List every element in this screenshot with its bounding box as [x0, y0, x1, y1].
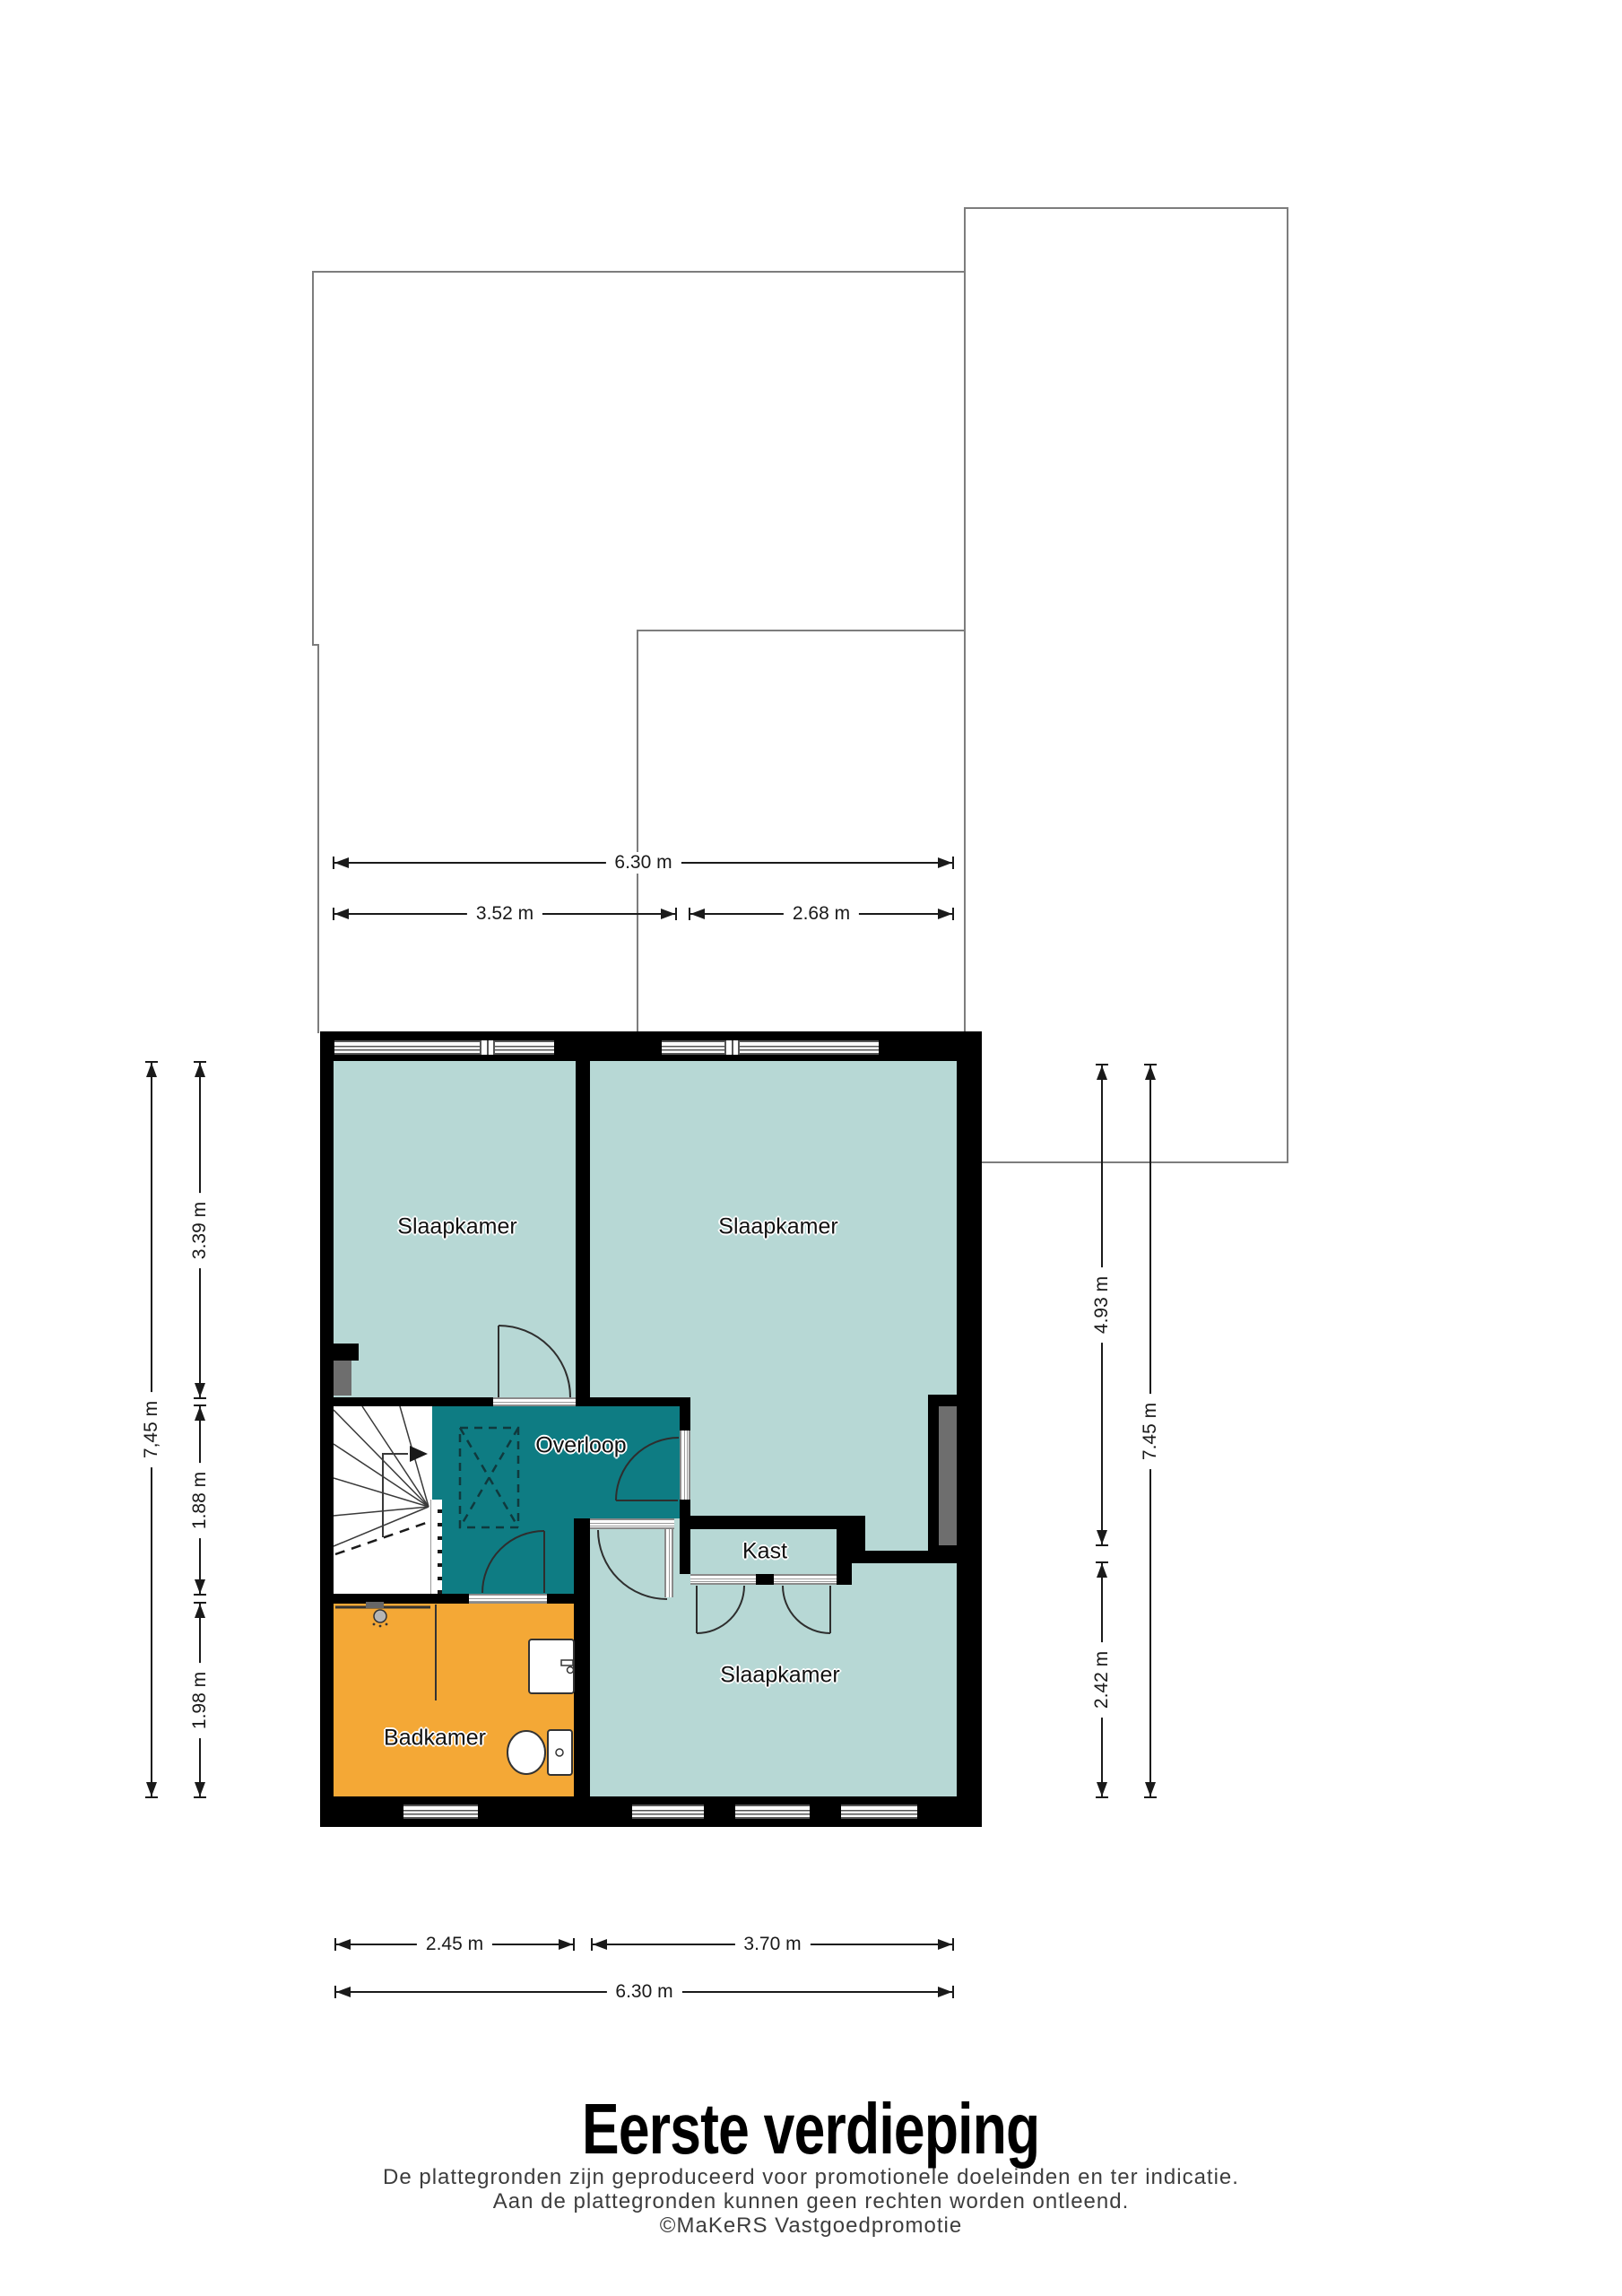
- door-leaf-bedroom3: [664, 1529, 673, 1597]
- dim-left-upper: 3.39 m: [199, 1063, 201, 1397]
- roof-outline-left-upper: [312, 271, 314, 645]
- room-overloop-lower: [432, 1518, 574, 1594]
- wall-kast-left: [680, 1529, 690, 1574]
- dim-left-lower-label: 1.98 m: [189, 1662, 211, 1737]
- roof-outline-left-lower: [317, 644, 319, 1033]
- dim-bottom-right-label: 3.70 m: [734, 1934, 810, 1955]
- roof-outline-top: [312, 271, 966, 273]
- wall-exterior-right: [957, 1031, 982, 1827]
- roof-outline-inner-top: [637, 630, 965, 631]
- wall-kast-top: [680, 1516, 852, 1529]
- roof-outline-right: [1287, 207, 1288, 1163]
- label-overloop: Overloop: [535, 1433, 626, 1459]
- disclaimer-line-1: De plattegronden zijn geproduceerd voor …: [0, 2165, 1622, 2190]
- room-overloop-upper: [432, 1406, 680, 1518]
- dim-right-total-label: 7.45 m: [1140, 1393, 1161, 1468]
- stairwell: [334, 1406, 432, 1594]
- dim-left-total-label: 7,45 m: [141, 1392, 162, 1467]
- label-slaapkamer-top-right: Slaapkamer: [718, 1214, 837, 1240]
- chimney-bedroom1: [334, 1361, 351, 1396]
- chimney-bedroom2: [939, 1406, 957, 1545]
- dim-top-left-label: 3.52 m: [467, 903, 542, 925]
- room-badkamer: [334, 1604, 574, 1796]
- roof-outline-inner-left: [637, 630, 638, 1032]
- roof-outline-top-right: [964, 207, 1288, 209]
- disclaimer-line-3: ©MaKeRS Vastgoedpromotie: [0, 2213, 1622, 2239]
- dim-bottom-left-label: 2.45 m: [417, 1934, 492, 1955]
- window-top-bedroom2: [662, 1040, 879, 1055]
- dim-left-middle: 1.88 m: [199, 1406, 201, 1594]
- label-slaapkamer-top-left: Slaapkamer: [397, 1214, 516, 1240]
- label-kast: Kast: [742, 1539, 787, 1565]
- dim-top-total: 6.30 m: [334, 862, 952, 864]
- wall-overloop-top-right: [576, 1397, 690, 1406]
- floor-plan-canvas: Slaapkamer Slaapkamer Slaapkamer Overloo…: [0, 0, 1622, 2296]
- dim-top-right-span: 2.68 m: [690, 913, 952, 915]
- dim-top-total-label: 6.30 m: [605, 852, 681, 874]
- dim-left-middle-label: 1.88 m: [189, 1462, 211, 1537]
- dim-right-lower-label: 2.42 m: [1091, 1642, 1113, 1718]
- window-bottom-bedroom3-c: [841, 1805, 917, 1819]
- window-bottom-bedroom3-b: [735, 1805, 810, 1819]
- dim-right-total: 7.45 m: [1149, 1065, 1151, 1796]
- window-mullion-icon: [480, 1040, 495, 1055]
- wall-overloop-top-left: [334, 1397, 493, 1406]
- dim-left-lower: 1.98 m: [199, 1604, 201, 1796]
- stair-balustrade: [430, 1500, 442, 1594]
- roof-outline-step: [964, 207, 966, 273]
- dim-left-total: 7,45 m: [151, 1063, 152, 1796]
- dim-bottom-left-span: 2.45 m: [336, 1944, 573, 1945]
- dim-right-upper-label: 4.93 m: [1091, 1267, 1113, 1343]
- page-title-wrap: Eerste verdieping: [0, 2088, 1622, 2170]
- dim-top-left-span: 3.52 m: [334, 913, 675, 915]
- roof-outline-bottom-right: [982, 1161, 1288, 1163]
- dim-right-lower: 2.42 m: [1101, 1563, 1103, 1796]
- label-slaapkamer-bottom: Slaapkamer: [720, 1663, 839, 1689]
- sill-bedroom3-door: [590, 1518, 674, 1529]
- window-top-bedroom1: [334, 1040, 554, 1055]
- window-mullion-icon: [724, 1040, 740, 1055]
- sill-bedroom2-door: [680, 1431, 690, 1500]
- wall-badkamer-top-right: [547, 1594, 576, 1604]
- dim-bottom-total-label: 6.30 m: [606, 1981, 681, 2003]
- wall-badkamer-right: [574, 1594, 590, 1796]
- dim-left-upper-label: 3.39 m: [189, 1192, 211, 1267]
- wall-badkamer-top-left: [334, 1594, 469, 1604]
- roof-outline-mid-vertical: [964, 271, 966, 1032]
- dim-bottom-total: 6.30 m: [336, 1991, 952, 1993]
- dim-right-upper: 4.93 m: [1101, 1065, 1103, 1544]
- wall-exterior-left: [320, 1031, 334, 1827]
- window-bottom-badkamer: [403, 1805, 478, 1819]
- disclaimer-line-2: Aan de plattegronden kunnen geen rechten…: [0, 2189, 1622, 2214]
- wall-kast-door-mullion: [756, 1574, 774, 1585]
- wall-stub-bedroom1: [333, 1344, 359, 1361]
- page-title: Eerste verdieping: [582, 2088, 1039, 2170]
- dim-bottom-right-span: 3.70 m: [593, 1944, 952, 1945]
- window-bottom-bedroom3-a: [632, 1805, 704, 1819]
- sill-bedroom1-door: [493, 1397, 576, 1406]
- wall-bedroom1-bedroom2: [576, 1061, 590, 1397]
- dim-top-right-label: 2.68 m: [784, 903, 859, 925]
- sill-badkamer-door: [469, 1594, 547, 1604]
- wall-bedroom2-bedroom3: [849, 1551, 957, 1563]
- label-badkamer: Badkamer: [384, 1726, 486, 1752]
- wall-overloop-right-upper: [680, 1397, 690, 1431]
- wall-overloop-bedroom3: [574, 1518, 590, 1604]
